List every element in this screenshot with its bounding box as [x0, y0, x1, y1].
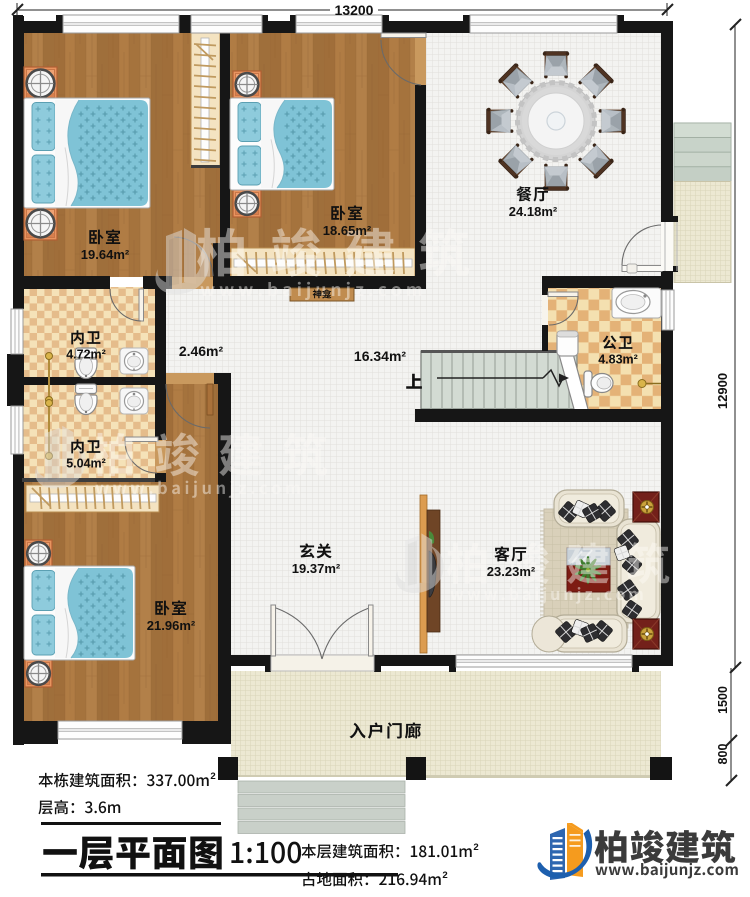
svg-text:2: 2: [442, 870, 447, 881]
svg-text:19.64m²: 19.64m²: [81, 247, 130, 262]
svg-text:13200: 13200: [335, 2, 374, 18]
svg-text:4.72m²: 4.72m²: [66, 348, 106, 362]
svg-text:1500: 1500: [716, 686, 730, 714]
svg-text:4.83m²: 4.83m²: [598, 353, 638, 367]
svg-text:18.65m²: 18.65m²: [323, 223, 372, 238]
svg-text:21.96m²: 21.96m²: [147, 618, 196, 633]
svg-text:2: 2: [473, 842, 478, 853]
svg-text:2: 2: [210, 771, 215, 782]
svg-text:23.23m²: 23.23m²: [487, 564, 536, 579]
svg-text:5.04m²: 5.04m²: [66, 457, 106, 471]
svg-text:19.37m²: 19.37m²: [292, 561, 341, 576]
svg-text:800: 800: [716, 744, 730, 765]
svg-text:16.34m²: 16.34m²: [354, 348, 406, 364]
svg-text:2.46m²: 2.46m²: [179, 343, 224, 359]
svg-text:12900: 12900: [715, 373, 730, 409]
svg-text:24.18m²: 24.18m²: [509, 204, 558, 219]
